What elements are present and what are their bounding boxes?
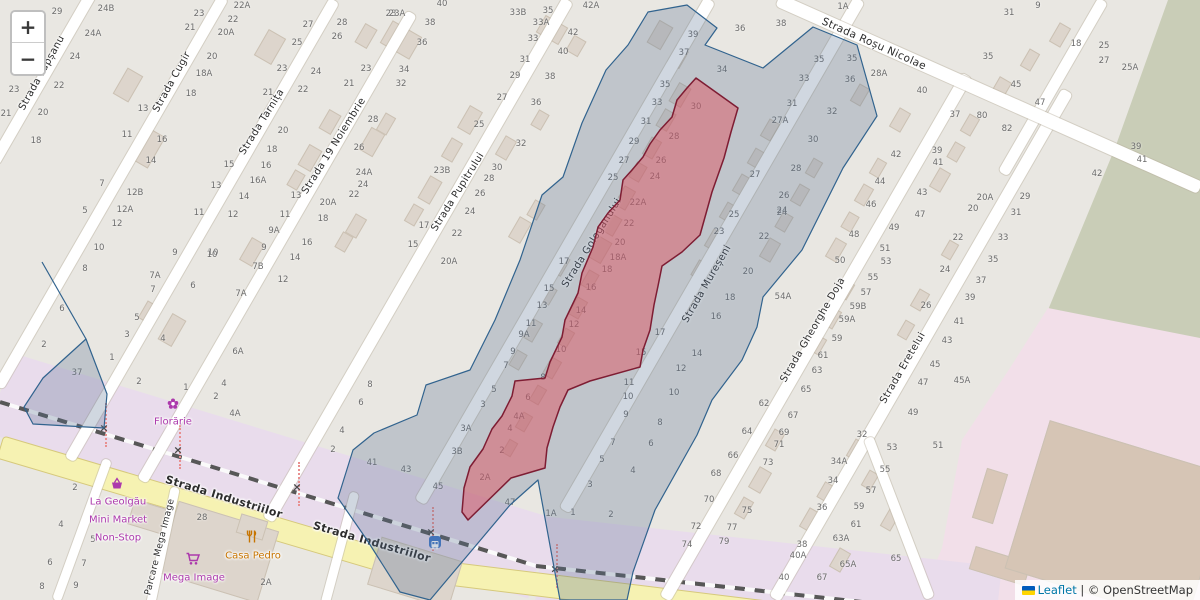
zoom-in-button[interactable]: + <box>12 12 44 43</box>
zoom-control: + − <box>10 10 46 76</box>
selection-area-blue-small[interactable] <box>24 339 107 428</box>
ukraine-flag-icon <box>1022 586 1035 595</box>
overlay-layer <box>0 0 1200 600</box>
zoom-out-button[interactable]: − <box>12 43 44 74</box>
osm-attribution[interactable]: © OpenStreetMap <box>1088 583 1193 597</box>
map-canvas[interactable]: 2924B24A24232221201813111618212322A2220A… <box>0 0 1200 600</box>
attribution-separator: | <box>1080 583 1084 597</box>
attribution-bar: Leaflet | © OpenStreetMap <box>1015 580 1200 600</box>
leaflet-link[interactable]: Leaflet <box>1038 583 1077 597</box>
overlay-boundary-line <box>42 262 86 339</box>
